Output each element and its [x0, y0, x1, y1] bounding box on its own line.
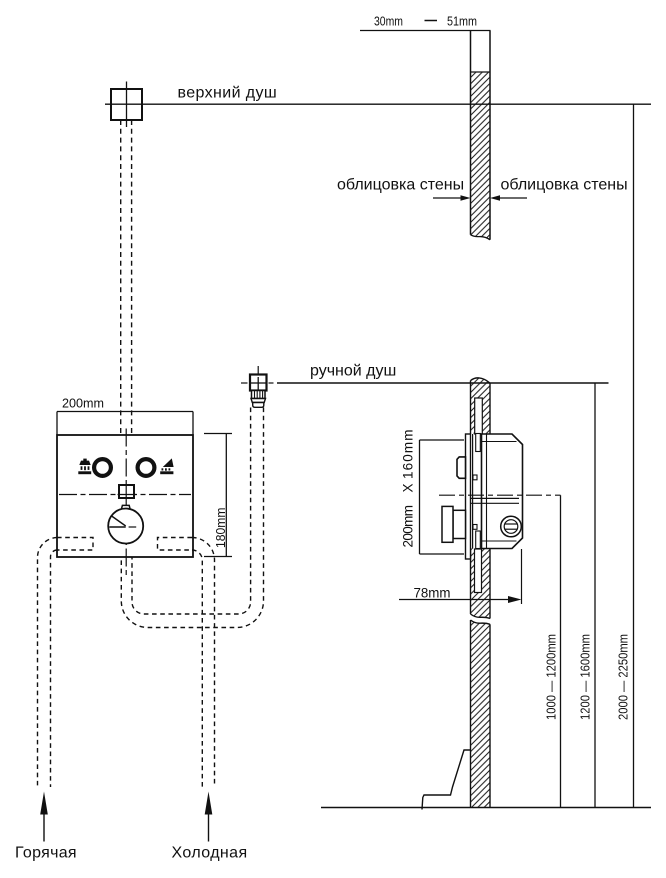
- svg-text:1000 — 1200mm: 1000 — 1200mm: [544, 634, 559, 720]
- svg-text:160mm: 160mm: [401, 430, 416, 480]
- svg-text:200mm: 200mm: [401, 505, 416, 548]
- svg-text:2000 — 2250mm: 2000 — 2250mm: [616, 634, 631, 720]
- svg-text:Холодная: Холодная: [172, 845, 248, 862]
- svg-text:X: X: [401, 483, 416, 492]
- svg-text:верхний душ: верхний душ: [178, 85, 278, 102]
- svg-text:51mm: 51mm: [447, 14, 477, 29]
- svg-text:ручной душ: ручной душ: [310, 363, 396, 380]
- svg-text:облицовка стены: облицовка стены: [337, 177, 464, 194]
- svg-text:облицовка стены: облицовка стены: [501, 177, 628, 194]
- svg-text:30mm: 30mm: [374, 14, 403, 29]
- svg-text:180mm: 180mm: [213, 508, 228, 549]
- svg-text:Горячая: Горячая: [15, 845, 77, 862]
- svg-text:78mm: 78mm: [414, 586, 451, 601]
- svg-text:200mm: 200mm: [62, 396, 104, 411]
- svg-text:1200 — 1600mm: 1200 — 1600mm: [578, 634, 593, 720]
